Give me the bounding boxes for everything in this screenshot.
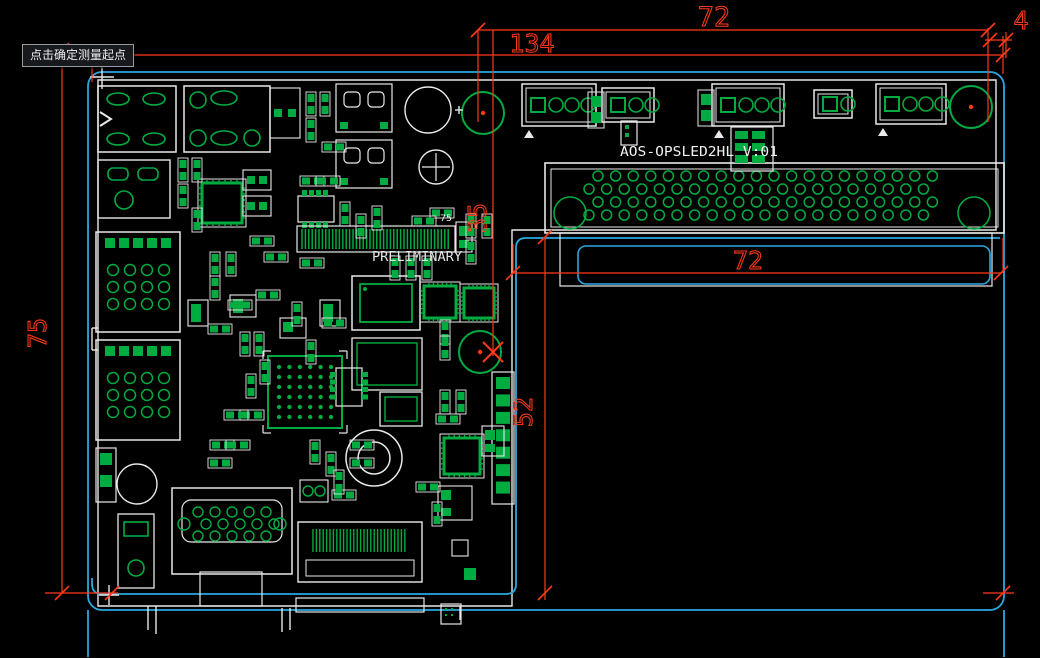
pin-count-label: 75 xyxy=(440,214,452,224)
dimension-label: 35 xyxy=(463,203,492,233)
dimension-label: 72 xyxy=(698,2,731,33)
smallconn-component xyxy=(270,88,300,138)
measure-tooltip-text: 点击确定测量起点 xyxy=(30,48,126,62)
smallconn-component xyxy=(243,170,271,190)
lan-component xyxy=(96,232,180,332)
hdmi-component xyxy=(298,522,422,582)
trafo-component xyxy=(336,84,392,132)
trafo-component xyxy=(336,140,392,188)
dsub-component xyxy=(172,488,292,574)
mark-component xyxy=(524,130,534,138)
preliminary-label: PRELIMINARY xyxy=(372,250,462,265)
qfn-component xyxy=(460,284,498,322)
dimension-label: 75 xyxy=(23,318,52,348)
sq-component xyxy=(452,540,468,556)
jack-component xyxy=(98,160,170,218)
pinhdr-component xyxy=(96,448,116,502)
conn4-component xyxy=(712,84,785,126)
mark-component xyxy=(878,128,888,136)
sbox-component xyxy=(188,300,208,326)
dimension-label: 72 xyxy=(733,246,763,275)
tab-component xyxy=(560,233,992,286)
pads2c-component xyxy=(300,480,328,502)
board-name-label: AOS-OPSLED2HL V:01 xyxy=(620,145,778,160)
lan-component xyxy=(96,340,180,440)
pcb-drawing: 72134435527572AOS-OPSLED2HL V:01PRELIMIN… xyxy=(0,0,1040,658)
soic-component xyxy=(298,190,334,228)
tab-component xyxy=(200,572,262,606)
ic-component xyxy=(380,392,422,426)
board-outline xyxy=(88,72,1004,657)
smallconn-component xyxy=(243,196,271,216)
mark-component xyxy=(714,130,724,138)
cad-viewport[interactable]: 72134435527572AOS-OPSLED2HL V:01PRELIMIN… xyxy=(0,0,1040,658)
conn4-component xyxy=(876,84,949,124)
qfn-component xyxy=(198,179,246,227)
pinhdr-component xyxy=(492,372,514,504)
pcb-components xyxy=(96,84,1004,624)
measure-tooltip: 点击确定测量起点 xyxy=(22,44,134,67)
capw-component xyxy=(117,464,157,504)
sbox-component xyxy=(438,486,472,520)
dimension-label: 4 xyxy=(1013,6,1028,35)
usb-component xyxy=(98,86,176,152)
conn3-component xyxy=(602,88,659,122)
dimension-label: 52 xyxy=(509,397,538,427)
ddr-component xyxy=(352,276,420,330)
barrel-component xyxy=(118,514,154,588)
qfn-component xyxy=(420,282,460,322)
soicv-component xyxy=(330,368,368,406)
conn4o-component xyxy=(184,86,270,152)
opsconn-component xyxy=(545,163,1004,233)
hdrgrid-component xyxy=(621,121,637,145)
hdrgrid-component xyxy=(441,604,461,624)
conn4-component xyxy=(522,84,596,126)
qfn-component xyxy=(440,434,484,478)
conn2-component xyxy=(814,90,855,118)
gsq-component xyxy=(464,568,476,580)
capw-component xyxy=(405,87,451,133)
dimension-label: 134 xyxy=(509,29,554,58)
